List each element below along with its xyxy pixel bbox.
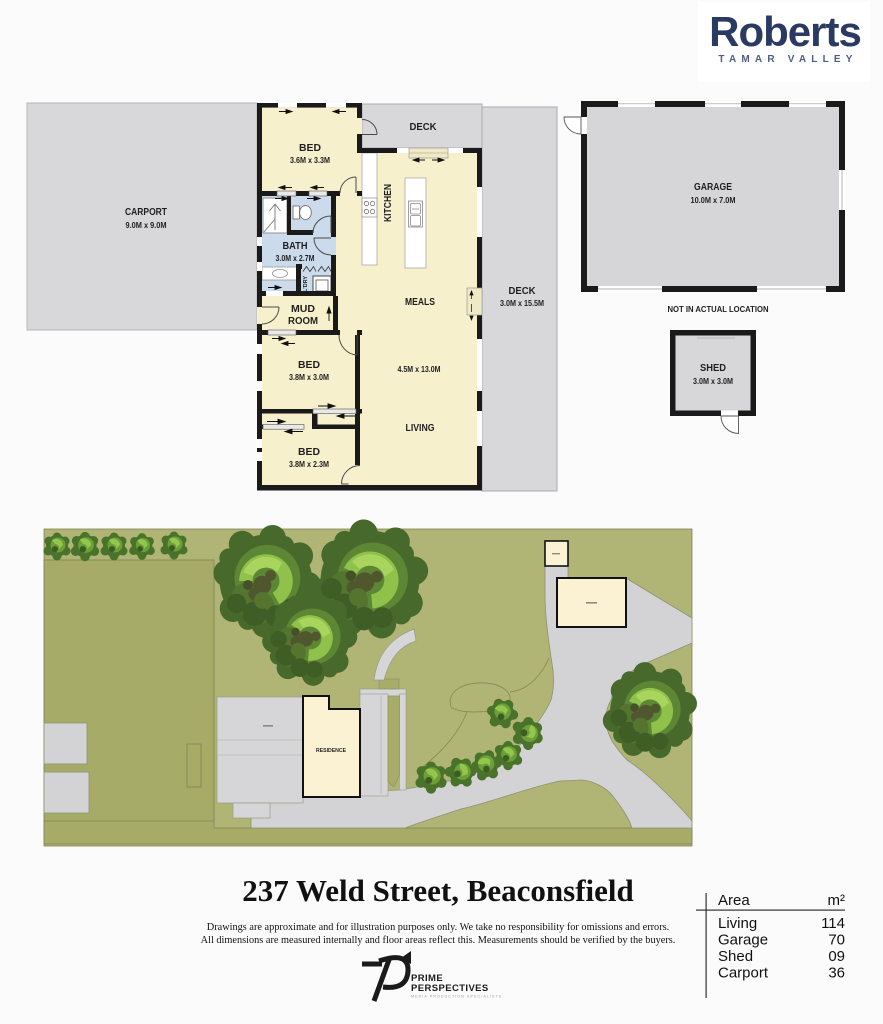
svg-text:Shed: Shed: [718, 948, 753, 965]
svg-text:RESIDENCE: RESIDENCE: [316, 748, 346, 754]
svg-text:9.0M x 9.0M: 9.0M x 9.0M: [126, 221, 167, 230]
svg-text:Roberts: Roberts: [709, 8, 861, 55]
svg-text:NOT IN ACTUAL LOCATION: NOT IN ACTUAL LOCATION: [668, 304, 769, 314]
svg-text:3.0M x 15.5M: 3.0M x 15.5M: [500, 299, 544, 308]
svg-text:114: 114: [821, 915, 845, 932]
svg-text:36: 36: [828, 965, 845, 982]
svg-text:09: 09: [828, 948, 845, 965]
svg-text:BATH: BATH: [283, 241, 308, 252]
svg-text:MEDIA PRODUCTION SPECIALISTS: MEDIA PRODUCTION SPECIALISTS: [411, 995, 502, 999]
svg-text:4.5M x 13.0M: 4.5M x 13.0M: [398, 365, 441, 374]
svg-text:L'DRY: L'DRY: [303, 276, 309, 292]
svg-text:3.6M x 3.3M: 3.6M x 3.3M: [290, 156, 330, 165]
svg-text:KITCHEN: KITCHEN: [383, 184, 394, 222]
svg-text:237 Weld Street, Beaconsfield: 237 Weld Street, Beaconsfield: [242, 873, 634, 908]
svg-text:DECK: DECK: [410, 122, 438, 133]
svg-text:TAMAR VALLEY: TAMAR VALLEY: [718, 54, 857, 65]
svg-text:BED: BED: [299, 143, 321, 154]
svg-text:SHED: SHED: [700, 363, 726, 374]
svg-text:LIVING: LIVING: [406, 423, 435, 434]
svg-text:3.0M x 2.7M: 3.0M x 2.7M: [276, 254, 315, 263]
svg-text:Garage: Garage: [718, 932, 768, 949]
svg-text:GARAGE: GARAGE: [694, 182, 732, 193]
svg-text:MEALS: MEALS: [405, 297, 435, 308]
svg-text:DECK: DECK: [509, 286, 537, 297]
svg-text:3.8M x 2.3M: 3.8M x 2.3M: [289, 460, 329, 469]
svg-text:3.8M x 3.0M: 3.8M x 3.0M: [289, 373, 329, 382]
svg-text:BED: BED: [298, 447, 320, 458]
svg-text:ROOM: ROOM: [288, 316, 318, 327]
svg-text:3.0M x 3.0M: 3.0M x 3.0M: [693, 377, 733, 386]
svg-text:All dimensions are measured in: All dimensions are measured internally a…: [201, 935, 676, 946]
svg-text:10.0M x 7.0M: 10.0M x 7.0M: [691, 196, 736, 205]
svg-text:Drawings are approximate and f: Drawings are approximate and for illustr…: [207, 922, 669, 933]
svg-text:Carport: Carport: [718, 965, 769, 982]
svg-text:BED: BED: [298, 360, 320, 371]
svg-text:PERSPECTIVES: PERSPECTIVES: [411, 983, 489, 994]
svg-text:Living: Living: [718, 915, 757, 932]
svg-text:m²: m²: [828, 892, 846, 909]
svg-text:70: 70: [828, 932, 845, 949]
svg-text:CARPORT: CARPORT: [125, 207, 167, 218]
svg-text:MUD: MUD: [291, 304, 315, 315]
svg-text:Area: Area: [718, 892, 750, 909]
